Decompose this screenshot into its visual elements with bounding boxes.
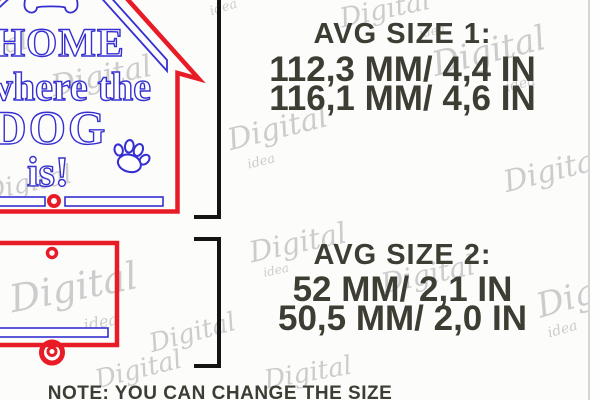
door-slat-right — [65, 197, 163, 206]
screw-hole — [49, 196, 59, 206]
dog-house-sign: HOME where the DOG is! — [0, 0, 199, 212]
roof-panel-line-left — [0, 0, 14, 16]
size2-title: AVG SIZE 2: — [230, 241, 575, 270]
size2-block: AVG SIZE 2: 52 MM/ 2,1 IN 50,5 MM/ 2,0 I… — [230, 241, 575, 333]
door-slat-left — [0, 197, 45, 206]
size2-mm-line2: 50,5 MM/ 2,0 IN — [230, 304, 575, 333]
size1-title: AVG SIZE 1: — [230, 20, 575, 49]
measure-bracket-2 — [194, 239, 219, 366]
bone-icon — [24, 0, 77, 13]
tag-top-hole — [48, 249, 57, 258]
size1-block: AVG SIZE 1: 112,3 MM/ 4,4 IN 116,1 MM/ 4… — [230, 20, 575, 113]
sign-word-home: HOME — [0, 20, 125, 65]
page-margin-strip — [590, 0, 600, 400]
tag-slat — [0, 328, 108, 337]
name-tag-shape — [0, 243, 117, 363]
size1-mm-line2: 116,1 MM/ 4,6 IN — [230, 84, 575, 113]
hanging-hole — [48, 348, 56, 356]
measure-bracket-1 — [194, 0, 219, 217]
page-edge-line — [588, 0, 590, 400]
sign-word-dog: DOG — [0, 102, 107, 155]
note-text: NOTE: YOU CAN CHANGE THE SIZE — [0, 383, 440, 400]
sign-word-is: is! — [27, 150, 69, 196]
size-chart-panel: Digital idea Digital idea Digital idea D… — [0, 0, 600, 400]
paw-icon — [108, 135, 155, 177]
